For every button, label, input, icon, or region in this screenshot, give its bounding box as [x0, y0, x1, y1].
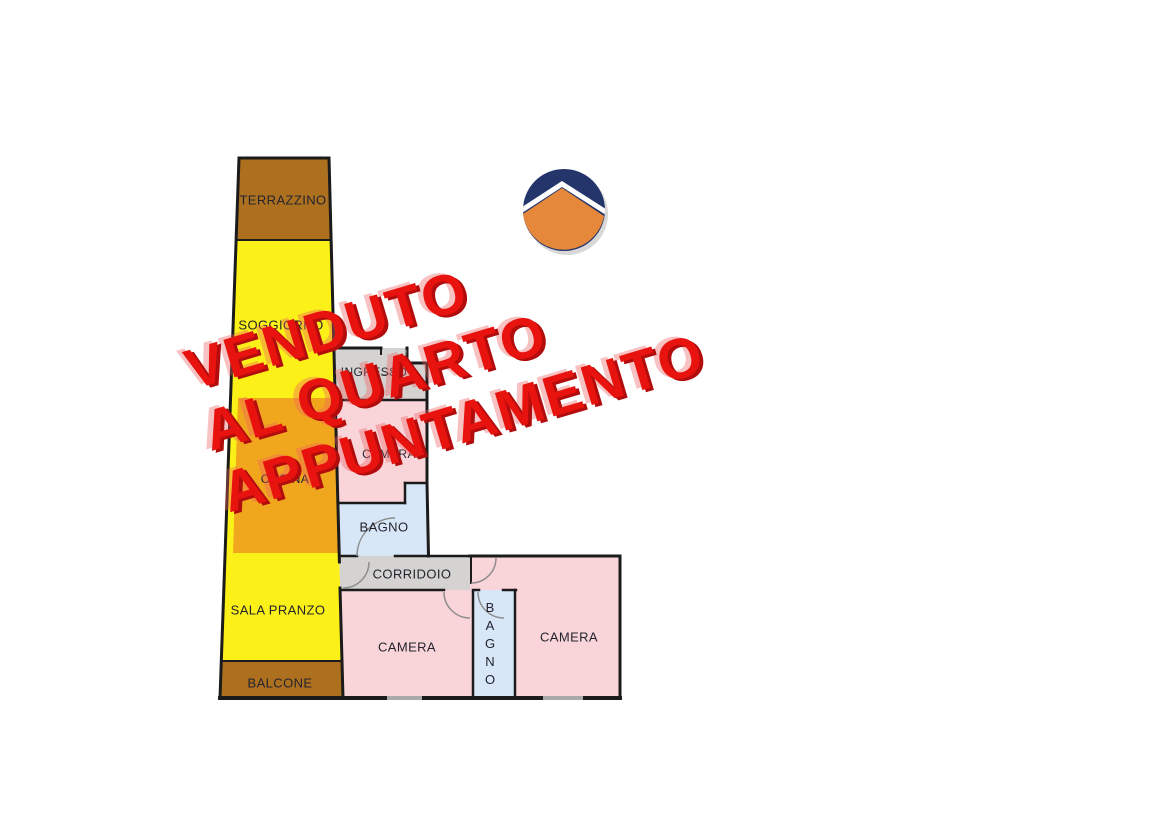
room-label-camera-2: CAMERA — [378, 640, 436, 655]
room-label-sala-pranzo: SALA PRANZO — [231, 603, 326, 618]
room-label-corridoio: CORRIDOIO — [373, 567, 452, 582]
room-label-bagno-1: BAGNO — [360, 520, 409, 535]
floorplan-image: TERRAZZINO SOGGIORNO INGRESSO CUCINA CAM… — [0, 0, 1154, 816]
room-label-camera-3: CAMERA — [540, 630, 598, 645]
room-label-balcone: BALCONE — [248, 676, 313, 691]
room-label-terrazzino: TERRAZZINO — [239, 193, 326, 208]
room-label-bagno-2: BAGNO — [483, 600, 498, 690]
